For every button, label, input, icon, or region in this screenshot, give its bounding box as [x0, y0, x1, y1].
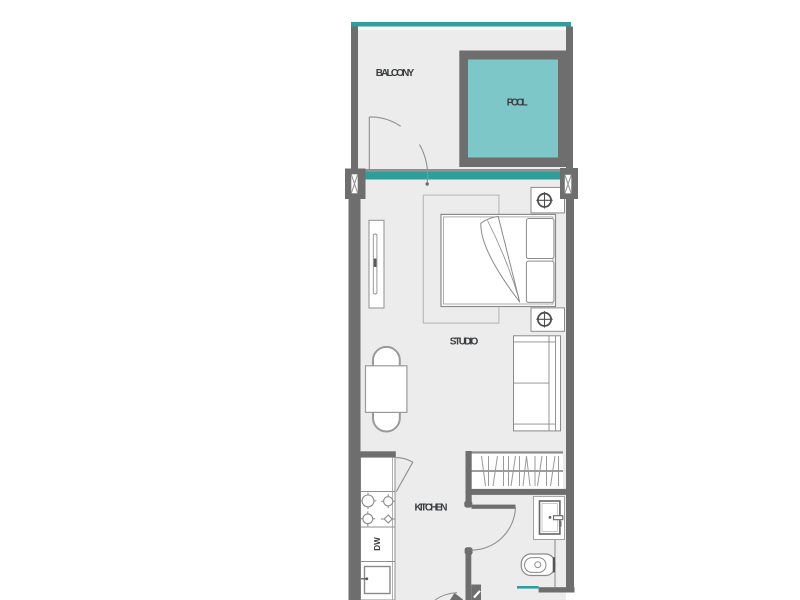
svg-text:STUDIO: STUDIO — [450, 337, 479, 348]
svg-text:DW: DW — [373, 537, 382, 551]
svg-text:POOL: POOL — [507, 98, 528, 109]
svg-text:BALCONY: BALCONY — [376, 68, 415, 79]
svg-text:KITCHEN: KITCHEN — [415, 503, 448, 514]
